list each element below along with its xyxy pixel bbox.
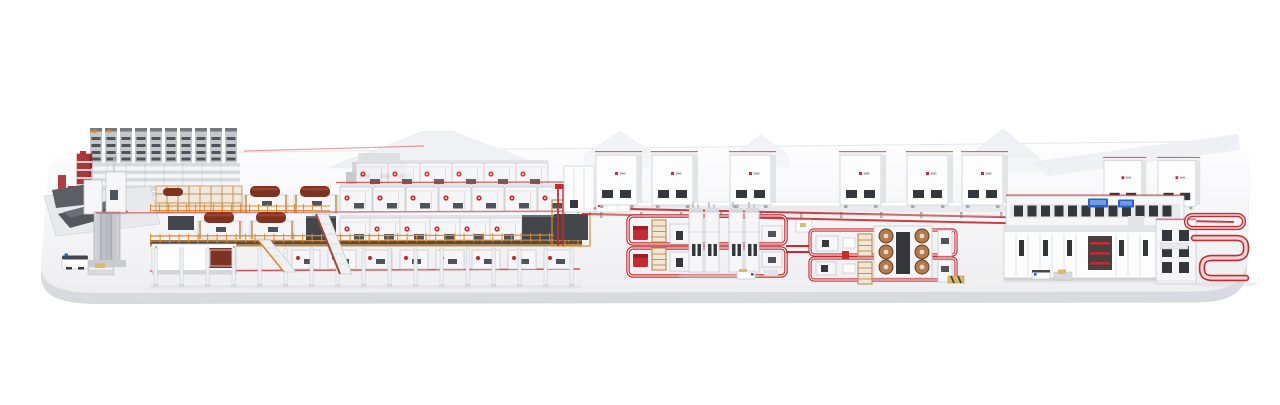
bridge-shadow bbox=[150, 285, 582, 289]
render-canvas bbox=[0, 0, 1280, 405]
dark-panel bbox=[168, 216, 194, 230]
maroon-cabinet bbox=[208, 248, 234, 268]
finishing-line bbox=[1004, 195, 1196, 285]
winder-opening bbox=[896, 232, 910, 274]
pallet-load bbox=[95, 264, 105, 269]
factory-line-render bbox=[0, 0, 1280, 405]
upper-railing bbox=[150, 206, 330, 211]
finishing-machine-front bbox=[1004, 226, 1156, 281]
tier-red-trim bbox=[336, 182, 580, 183]
agv-cart bbox=[62, 254, 88, 270]
agv-cart bbox=[1032, 270, 1050, 279]
hazard-pallet bbox=[948, 276, 964, 283]
web-guide-column bbox=[94, 212, 120, 262]
lower-tier bbox=[168, 212, 576, 243]
floor-cabinets bbox=[152, 244, 236, 274]
upper-tier-modules bbox=[340, 184, 570, 212]
winder-block bbox=[874, 226, 932, 278]
bridge-back-row bbox=[356, 160, 548, 188]
agv-screen bbox=[65, 254, 69, 257]
red-rack-block bbox=[58, 175, 66, 189]
red-box bbox=[842, 251, 849, 259]
splicer-unit bbox=[84, 180, 102, 214]
paper-roll bbox=[163, 188, 183, 196]
